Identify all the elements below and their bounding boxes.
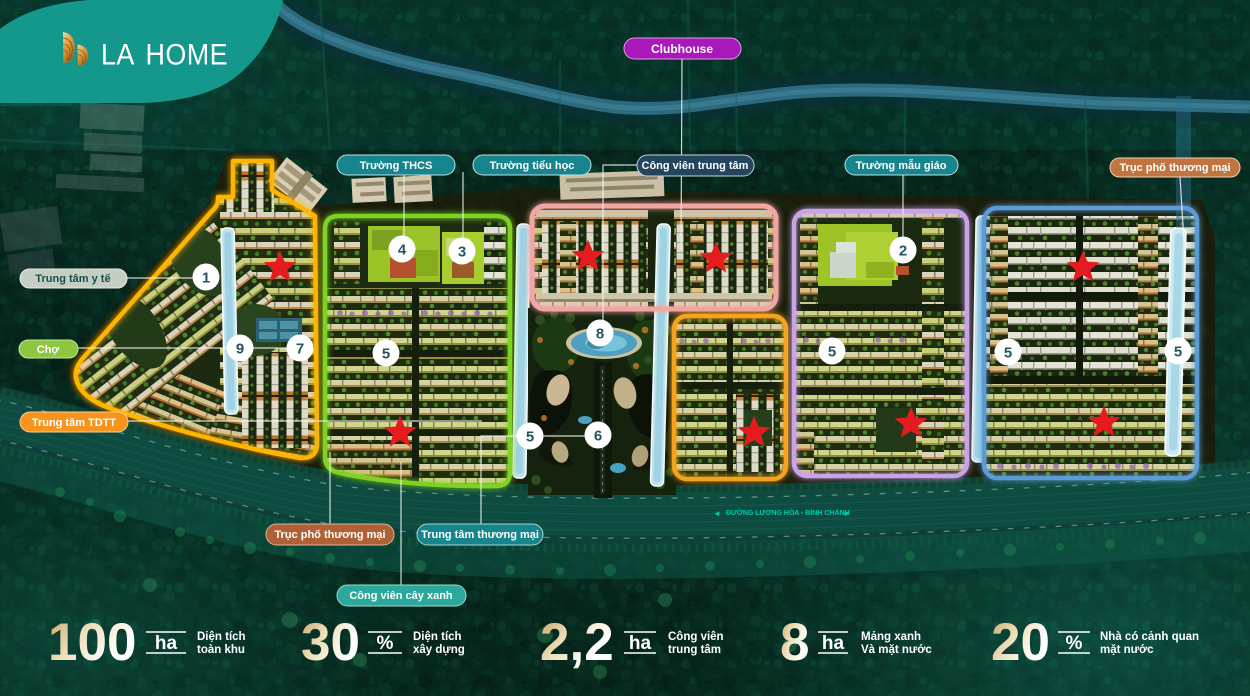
svg-text:%: % (1066, 633, 1083, 654)
svg-text:20: 20 (991, 613, 1050, 672)
svg-text:►: ► (843, 509, 851, 518)
svg-text:4: 4 (398, 242, 407, 259)
svg-text:Trường mẫu giáo: Trường mẫu giáo (856, 159, 947, 172)
svg-text:Công viên: Công viên (668, 631, 724, 643)
svg-text:30: 30 (301, 613, 360, 672)
svg-text:2: 2 (899, 243, 907, 260)
svg-text:Mảng xanh: Mảng xanh (861, 631, 921, 643)
svg-text:Trường THCS: Trường THCS (360, 160, 433, 172)
svg-text:mặt nước: mặt nước (1100, 644, 1154, 656)
svg-text:◄: ◄ (713, 509, 721, 518)
svg-text:Trung tâm thương mại: Trung tâm thương mại (421, 529, 539, 541)
svg-text:Nhà có cảnh quan: Nhà có cảnh quan (1100, 631, 1199, 643)
svg-text:Clubhouse: Clubhouse (651, 42, 713, 56)
svg-text:100: 100 (48, 613, 136, 672)
svg-text:6: 6 (594, 428, 602, 445)
svg-text:Diện tích: Diện tích (197, 631, 246, 643)
svg-text:ha: ha (629, 633, 652, 654)
svg-text:toàn khu: toàn khu (197, 644, 245, 656)
svg-text:5: 5 (526, 429, 534, 446)
svg-text:3: 3 (458, 244, 466, 261)
svg-text:trung tâm: trung tâm (668, 644, 721, 656)
svg-text:2,2: 2,2 (540, 613, 614, 672)
svg-text:Trung tâm TDTT: Trung tâm TDTT (32, 417, 117, 429)
svg-text:Trục phố thương mại: Trục phố thương mại (1119, 162, 1230, 174)
svg-text:8: 8 (780, 613, 809, 672)
svg-text:LA HOME: LA HOME (101, 39, 228, 72)
svg-text:7: 7 (296, 341, 304, 358)
svg-text:Trục phố thương mại: Trục phố thương mại (274, 529, 385, 541)
svg-text:Trung tâm y tế: Trung tâm y tế (35, 273, 111, 285)
svg-text:Diện tích: Diện tích (413, 631, 462, 643)
svg-text:ha: ha (155, 633, 178, 654)
svg-text:5: 5 (1004, 345, 1012, 362)
svg-text:Công viên cây xanh: Công viên cây xanh (349, 590, 453, 602)
svg-text:%: % (377, 633, 394, 654)
svg-text:5: 5 (382, 346, 390, 363)
svg-text:Trường tiểu học: Trường tiểu học (490, 160, 575, 172)
svg-text:xây dựng: xây dựng (413, 644, 465, 656)
svg-text:Và mặt nước: Và mặt nước (861, 644, 932, 656)
svg-text:ha: ha (822, 633, 845, 654)
svg-text:Chợ: Chợ (37, 344, 60, 356)
svg-text:5: 5 (1174, 344, 1182, 361)
svg-text:5: 5 (828, 344, 836, 361)
svg-text:8: 8 (596, 326, 604, 343)
svg-text:9: 9 (236, 341, 244, 358)
svg-text:Công viên trung tâm: Công viên trung tâm (642, 160, 749, 172)
svg-text:1: 1 (202, 270, 210, 287)
svg-text:ĐƯỜNG LƯƠNG HÒA - BÌNH CHÁNH: ĐƯỜNG LƯƠNG HÒA - BÌNH CHÁNH (726, 508, 850, 517)
